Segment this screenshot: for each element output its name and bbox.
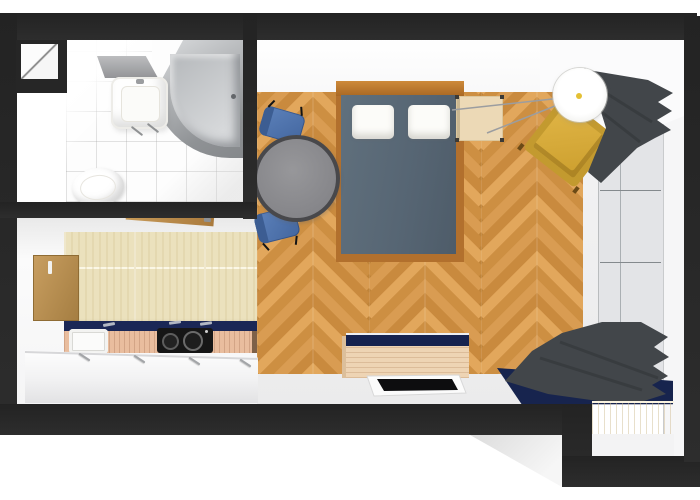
faucet-icon [136,79,144,84]
mat-button-icon [591,383,595,386]
sideboard [346,346,469,378]
pillow [352,105,394,139]
table-leg-icon [500,95,504,99]
alcove-floor [590,434,674,458]
table-leg-icon [500,138,504,142]
wall-right [684,16,700,462]
counter-end-panel [252,331,257,353]
window-bench [592,401,674,436]
pillow [408,105,450,139]
wall-bottom [0,404,568,435]
table-leg-icon [455,138,459,142]
window-glass [598,105,665,400]
bed-headboard [336,81,464,96]
closet-niche [21,44,58,79]
window-divider-line [600,262,661,263]
dining-table [253,135,340,222]
left-wall-door [33,255,79,321]
wall-left [0,13,17,434]
floor-lamp [553,68,607,122]
floor-plan [0,0,700,500]
washbasin-bowl [121,86,160,122]
door-handle-icon [48,261,52,274]
exterior-shadow [470,435,562,487]
mat-button-icon [576,382,580,385]
nightstand [456,96,503,141]
door-handle-icon [204,218,211,223]
wall-top [0,13,697,40]
burner-icon [162,333,179,350]
burner-icon [183,331,203,351]
wall-bathroom-divider [243,13,257,219]
window-mullion [620,105,621,400]
window-divider-line [600,190,661,191]
wall-bottom-right [562,456,700,487]
cooktop-knob-icon [205,330,208,333]
wall-bathroom-kitchen [0,202,257,218]
bathtub-drain [231,94,236,99]
lamp-bulb-icon [576,93,582,99]
table-leg-icon [455,95,459,99]
kitchen-sink [69,329,108,354]
kitchen-tiles [64,232,257,331]
